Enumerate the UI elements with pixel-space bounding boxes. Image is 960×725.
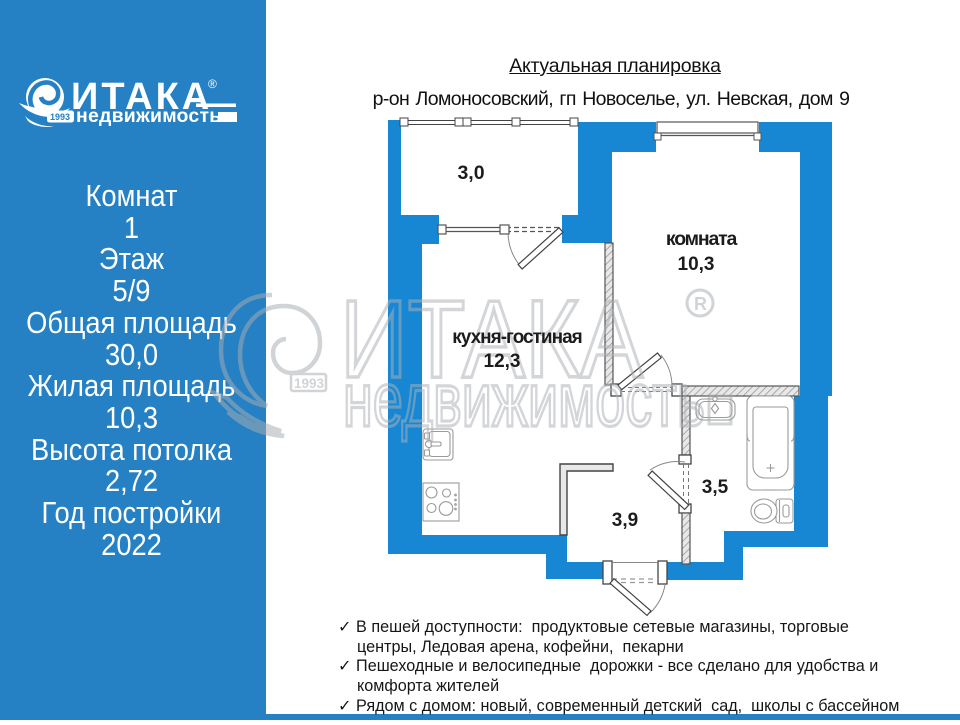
svg-text:3,9: 3,9 (612, 510, 638, 531)
svg-text:3,5: 3,5 (702, 477, 729, 498)
svg-text:кухня-гостиная: кухня-гостиная (452, 327, 581, 348)
svg-text:12,3: 12,3 (484, 351, 521, 372)
svg-text:3,0: 3,0 (457, 162, 484, 184)
svg-text:R: R (694, 294, 707, 314)
svg-text:10,3: 10,3 (678, 254, 715, 275)
svg-text:недвижимость: недвижимость (343, 358, 705, 443)
svg-text:1993: 1993 (294, 376, 325, 391)
svg-text:комната: комната (666, 228, 738, 250)
